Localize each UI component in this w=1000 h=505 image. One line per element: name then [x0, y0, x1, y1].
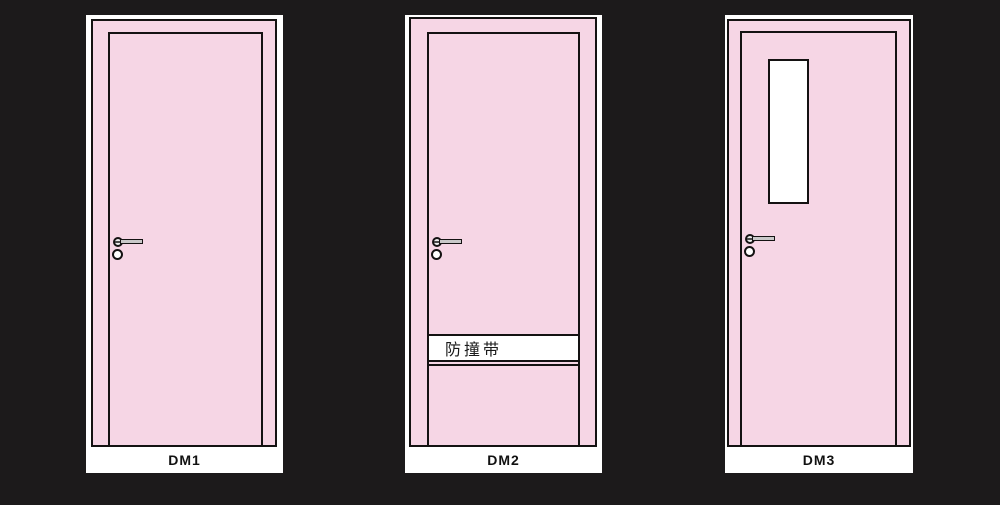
door-frame: 防撞带 [409, 17, 597, 447]
door-handle [743, 232, 783, 260]
bumper-strip-label: 防撞带 [429, 336, 502, 360]
door-leaf: 防撞带 [427, 32, 580, 445]
handle-lever-icon [752, 236, 775, 241]
door-card-dm3: DM3 [725, 15, 913, 473]
door-handle [111, 235, 151, 263]
handle-lever-icon [439, 239, 462, 244]
vision-panel [768, 59, 809, 204]
lock-cylinder-icon [744, 246, 755, 257]
door-label: DM1 [86, 447, 283, 473]
door-card-dm1: DM1 [86, 15, 283, 473]
handle-lever-icon [120, 239, 143, 244]
doors-diagram: DM1 防撞带 DM2 [0, 0, 1000, 505]
door-frame [91, 19, 277, 447]
lock-cylinder-icon [112, 249, 123, 260]
bumper-strip-line [429, 364, 578, 366]
bumper-strip: 防撞带 [429, 334, 578, 362]
door-leaf [740, 31, 897, 445]
door-handle [430, 235, 470, 263]
lock-cylinder-icon [431, 249, 442, 260]
door-card-dm2: 防撞带 DM2 [405, 15, 602, 473]
door-frame [727, 19, 911, 447]
door-label: DM3 [725, 447, 913, 473]
door-label: DM2 [405, 447, 602, 473]
door-leaf [108, 32, 263, 445]
